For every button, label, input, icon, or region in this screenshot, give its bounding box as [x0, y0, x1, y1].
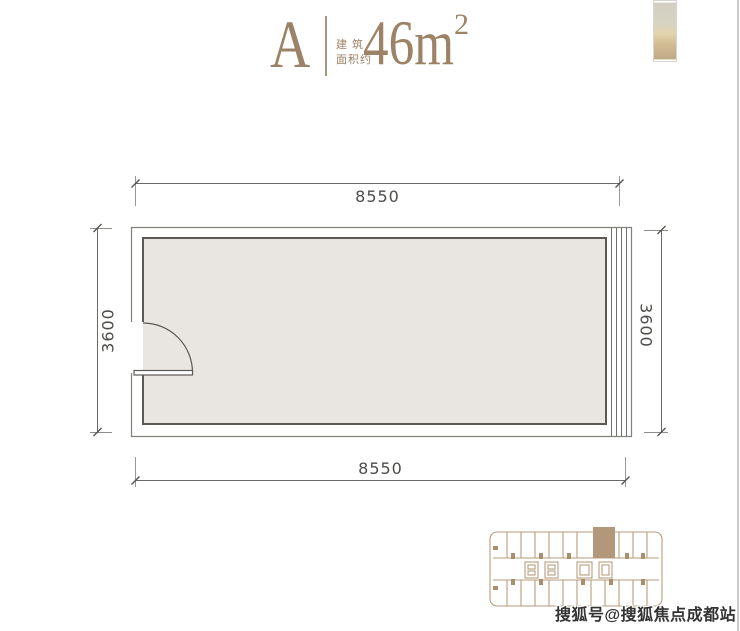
plan-floor [143, 238, 606, 424]
dim-top-label: 8550 [330, 187, 425, 206]
dim-bottom-label: 8550 [333, 459, 428, 478]
dim-right-label: 3600 [639, 285, 656, 367]
keyplan-highlight-unit [593, 527, 615, 558]
plan-window [612, 228, 627, 436]
keyplan-outline [490, 532, 662, 606]
watermark-text: 搜狐号@搜狐焦点成都站 [555, 601, 736, 625]
page-edge-line [737, 0, 739, 631]
dim-left-label: 3600 [99, 290, 116, 372]
keyplan-core [525, 562, 612, 578]
keyplan [485, 524, 667, 612]
floor-plan-page: A 建 筑 面积约 46m 2 [0, 0, 740, 631]
keyplan-ticks [493, 546, 645, 590]
door-leaf [134, 371, 193, 376]
